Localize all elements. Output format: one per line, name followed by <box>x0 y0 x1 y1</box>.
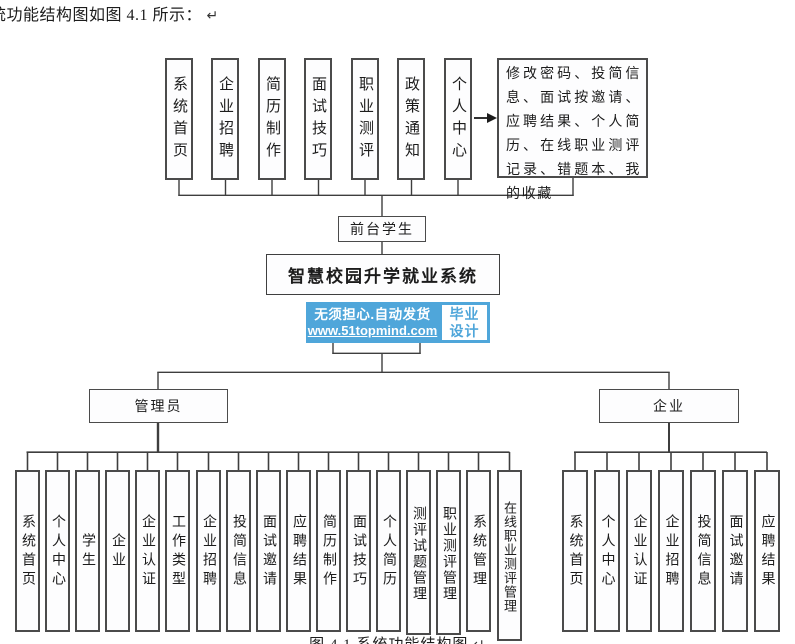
admin-child-box: 企业认证 <box>135 470 160 632</box>
admin-child-box: 面试技巧 <box>346 470 371 632</box>
node-interview-skills: 面试技巧 <box>304 58 332 180</box>
admin-child-box: 个人中心 <box>45 470 70 632</box>
watermark-badge-line2: 设计 <box>450 323 480 340</box>
intro-text: 统功能结构图如图 4.1 所示： ↵ <box>0 1 219 25</box>
enterprise-child-box: 系统首页 <box>562 470 588 632</box>
node-career-test: 职业测评 <box>351 58 379 180</box>
admin-child-box: 企业招聘 <box>196 470 221 632</box>
system-title-box: 智慧校园升学就业系统 <box>266 254 500 295</box>
return-mark: ↵ <box>207 8 219 24</box>
enterprise-child-box: 个人中心 <box>594 470 620 632</box>
admin-child-box: 应聘结果 <box>286 470 311 632</box>
enterprise-child-box: 面试邀请 <box>722 470 748 632</box>
node-enterprise: 企业 <box>599 389 739 423</box>
enterprise-child-box: 投简信息 <box>690 470 716 632</box>
middle-connectors <box>157 343 669 389</box>
watermark: 无须担心.自动发货 www.51topmind.com 毕业 设计 <box>306 302 490 343</box>
admin-child-box: 工作类型 <box>165 470 190 632</box>
enterprise-child-box: 应聘结果 <box>754 470 780 632</box>
node-resume-making: 简历制作 <box>258 58 286 180</box>
enterprise-child-box: 企业认证 <box>626 470 652 632</box>
node-personal-center: 个人中心 <box>444 58 472 180</box>
watermark-badge-line1: 毕业 <box>450 306 480 323</box>
node-front-student: 前台学生 <box>338 216 426 242</box>
watermark-banner: 无须担心.自动发货 www.51topmind.com <box>306 302 439 343</box>
admin-child-box: 企业 <box>105 470 130 632</box>
admin-child-box: 面试邀请 <box>256 470 281 632</box>
watermark-badge: 毕业 设计 <box>439 302 490 343</box>
personal-center-arrow <box>474 113 497 123</box>
watermark-url: www.51topmind.com <box>308 323 438 339</box>
admin-child-box: 测评试题管理 <box>406 470 431 635</box>
function-structure-diagram: 统功能结构图如图 4.1 所示： ↵ 系统首页 企业招聘 简历制作 面试技巧 职… <box>0 0 795 644</box>
admin-child-box: 简历制作 <box>316 470 341 632</box>
admin-child-box: 系统首页 <box>15 470 40 632</box>
return-mark: ↵ <box>473 637 486 644</box>
enterprise-branch-connectors <box>574 423 767 471</box>
admin-child-box: 职业测评管理 <box>436 470 461 635</box>
admin-branch-connectors <box>27 423 510 471</box>
admin-child-box: 在线职业测评管理 <box>497 470 522 641</box>
admin-child-box: 投简信息 <box>226 470 251 632</box>
figure-caption: 图 4.1 系统功能结构图 ↵ <box>0 633 795 644</box>
enterprise-child-box: 企业招聘 <box>658 470 684 632</box>
admin-child-box: 个人简历 <box>376 470 401 632</box>
admin-child-box: 学生 <box>75 470 100 632</box>
node-admin: 管理员 <box>89 389 228 423</box>
watermark-slogan: 无须担心.自动发货 <box>314 306 430 323</box>
node-enterprise-recruit: 企业招聘 <box>211 58 239 180</box>
admin-child-box: 系统管理 <box>466 470 491 632</box>
node-policy-notice: 政策通知 <box>397 58 425 180</box>
node-system-home: 系统首页 <box>165 58 193 180</box>
personal-center-detail: 修改密码、投简信息、面试按邀请、应聘结果、个人简历、在线职业测评记录、错题本、我… <box>497 58 648 178</box>
